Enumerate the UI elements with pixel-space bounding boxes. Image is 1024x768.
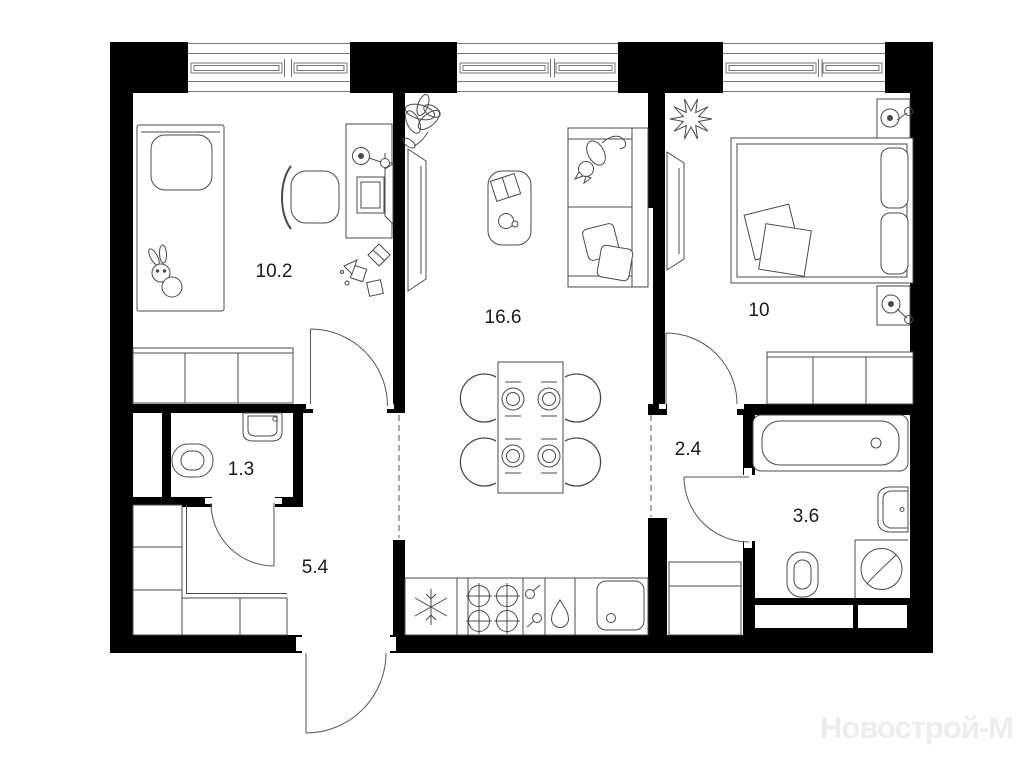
jamb [387,404,394,409]
washing-machine-icon [855,540,908,598]
cabinet [669,562,741,635]
chair [460,374,496,422]
watermark: Новострой-М [820,710,1013,745]
wall-bottom-left [110,635,302,653]
wardrobe [767,352,913,404]
jamb [275,498,282,504]
tv [408,149,426,291]
double-bed [731,138,913,283]
wall-left [110,42,133,653]
door-bathroom-main [684,477,749,542]
chair [565,438,601,486]
office-chair [282,166,339,229]
floor-plan-page: 10.2 16.6 10 1.3 5.4 2.4 3.6 Новострой-М [0,0,1024,768]
wall-living-bedroom-lower [653,208,665,404]
door-child-room [311,329,388,406]
kitchen-sink [597,581,644,630]
wall-corridor-bath-lower [743,541,755,600]
bathroom-main-fixtures [753,415,908,598]
window-child-room [188,44,350,92]
wall-kitchen-corridor [648,518,667,635]
jamb [306,404,313,409]
label-child-bedroom: 10.2 [256,261,293,282]
wall-inset-a [755,605,853,628]
washbasin [878,487,908,532]
plant-icon [401,93,443,150]
wall-shaft [162,413,171,498]
pillow [151,135,212,190]
wall-kitchen-left-stub [393,540,405,635]
jamb [389,637,396,651]
plant-star-icon [670,99,712,139]
chair [565,374,601,422]
tv [667,152,684,270]
door-entrance [306,653,386,733]
wall-top-c [618,42,723,93]
wall-right [910,42,933,653]
bedroom-furniture [667,99,913,404]
label-hallway: 5.4 [302,557,329,578]
wardrobe [133,348,293,403]
jamb [659,404,666,409]
window-living-room [457,44,618,92]
corridor-furniture [669,562,741,635]
living-room-furniture [401,93,648,635]
jamb [737,404,744,409]
bathtub [753,415,908,471]
wall-bedroom-bath [737,404,933,415]
label-corridor: 2.4 [675,439,702,460]
closet [133,505,287,635]
coffee-table [488,171,531,245]
window-bedroom [723,44,885,92]
windows [188,44,885,92]
toilet [787,552,818,597]
wall-inset-b [858,605,907,628]
washbasin [243,413,282,441]
wall-bath13-right [293,413,303,507]
chair [460,438,496,486]
label-bedroom: 10 [748,300,769,321]
nightstand-bottom [877,286,913,325]
label-living-room: 16.6 [485,307,522,328]
jamb [296,637,303,651]
label-bathroom-main: 3.6 [793,506,819,527]
toys [341,244,391,296]
nightstand-top [877,99,913,138]
wall-top-b [350,42,457,93]
toilet [172,444,213,477]
wall-living-bedroom-upper [648,93,665,208]
door-bedroom [666,333,737,404]
label-bathroom-guest: 1.3 [228,459,254,480]
hallway-furniture [133,505,287,635]
wall-hall-top-left [133,404,313,413]
floor-plan: 10.2 16.6 10 1.3 5.4 2.4 3.6 Новострой-М [0,0,1024,768]
jamb [744,468,752,475]
door-bathroom-guest [211,503,274,566]
